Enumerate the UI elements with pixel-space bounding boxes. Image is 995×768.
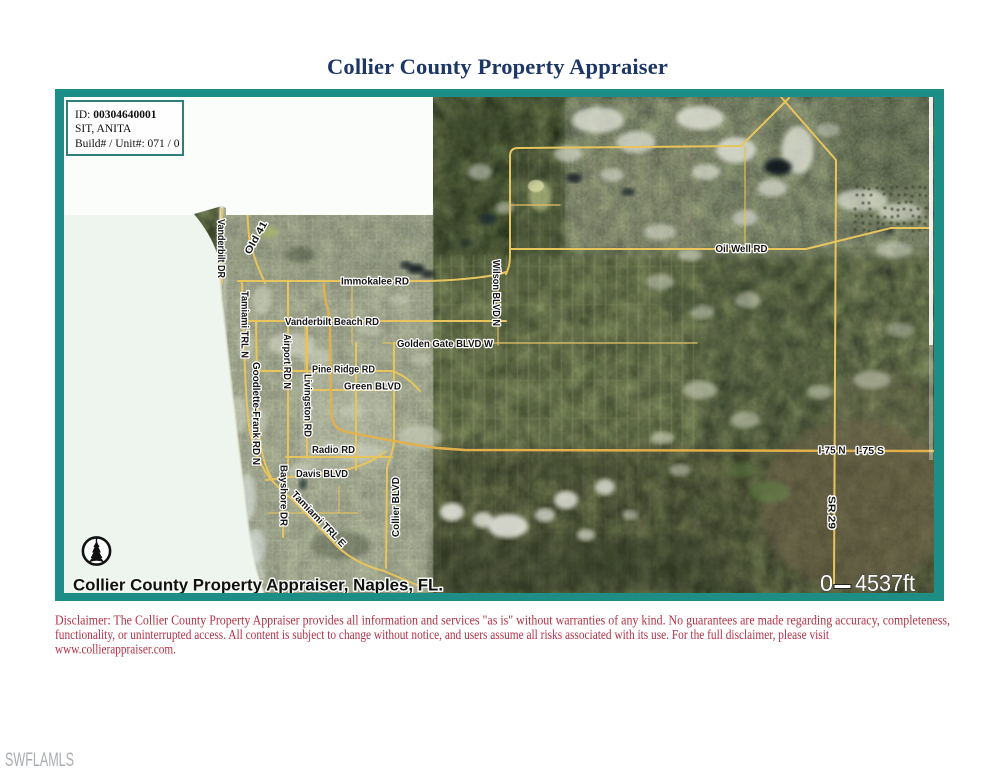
svg-text:Goodlette-Frank RD N: Goodlette-Frank RD N [250, 362, 261, 465]
svg-text:Wilson BLVD N: Wilson BLVD N [490, 260, 501, 326]
svg-text:Radio RD: Radio RD [312, 445, 355, 456]
svg-text:functionality, or uninterrupte: functionality, or uninterrupted access. … [55, 627, 829, 642]
svg-text:Airport RD N: Airport RD N [281, 334, 292, 389]
svg-text:Bayshore DR: Bayshore DR [278, 465, 289, 527]
svg-text:Golden Gate BLVD W: Golden Gate BLVD W [397, 339, 494, 350]
svg-text:Tamiami TRL N: Tamiami TRL N [239, 291, 250, 358]
svg-text:www.collierappraiser.com.: www.collierappraiser.com. [55, 642, 176, 657]
svg-text:Collier BLVD: Collier BLVD [391, 477, 402, 537]
svg-text:Pine Ridge RD: Pine Ridge RD [312, 365, 375, 376]
svg-text:Green BLVD: Green BLVD [344, 382, 401, 393]
svg-text:SWFLAMLS: SWFLAMLS [5, 750, 74, 768]
svg-text:Livingston RD: Livingston RD [302, 374, 313, 437]
svg-text:Vanderbilt Beach RD: Vanderbilt Beach RD [285, 317, 379, 328]
svg-text:I-75 N: I-75 N [819, 446, 846, 457]
svg-text:4537ft: 4537ft [855, 570, 915, 593]
svg-text:Collier County Property Apprai: Collier County Property Appraiser, Naple… [73, 576, 443, 594]
svg-text:I-75 S: I-75 S [856, 446, 884, 457]
svg-text:Davis BLVD: Davis BLVD [296, 469, 348, 480]
svg-text:SR 29: SR 29 [826, 496, 837, 530]
svg-text:Vanderbilt DR: Vanderbilt DR [215, 219, 226, 279]
svg-text:0: 0 [820, 570, 833, 593]
svg-text:Immokalee RD: Immokalee RD [341, 277, 409, 288]
svg-text:Disclaimer: The Collier County: Disclaimer: The Collier County Property … [55, 613, 950, 628]
svg-text:Oil Well RD: Oil Well RD [716, 244, 768, 255]
